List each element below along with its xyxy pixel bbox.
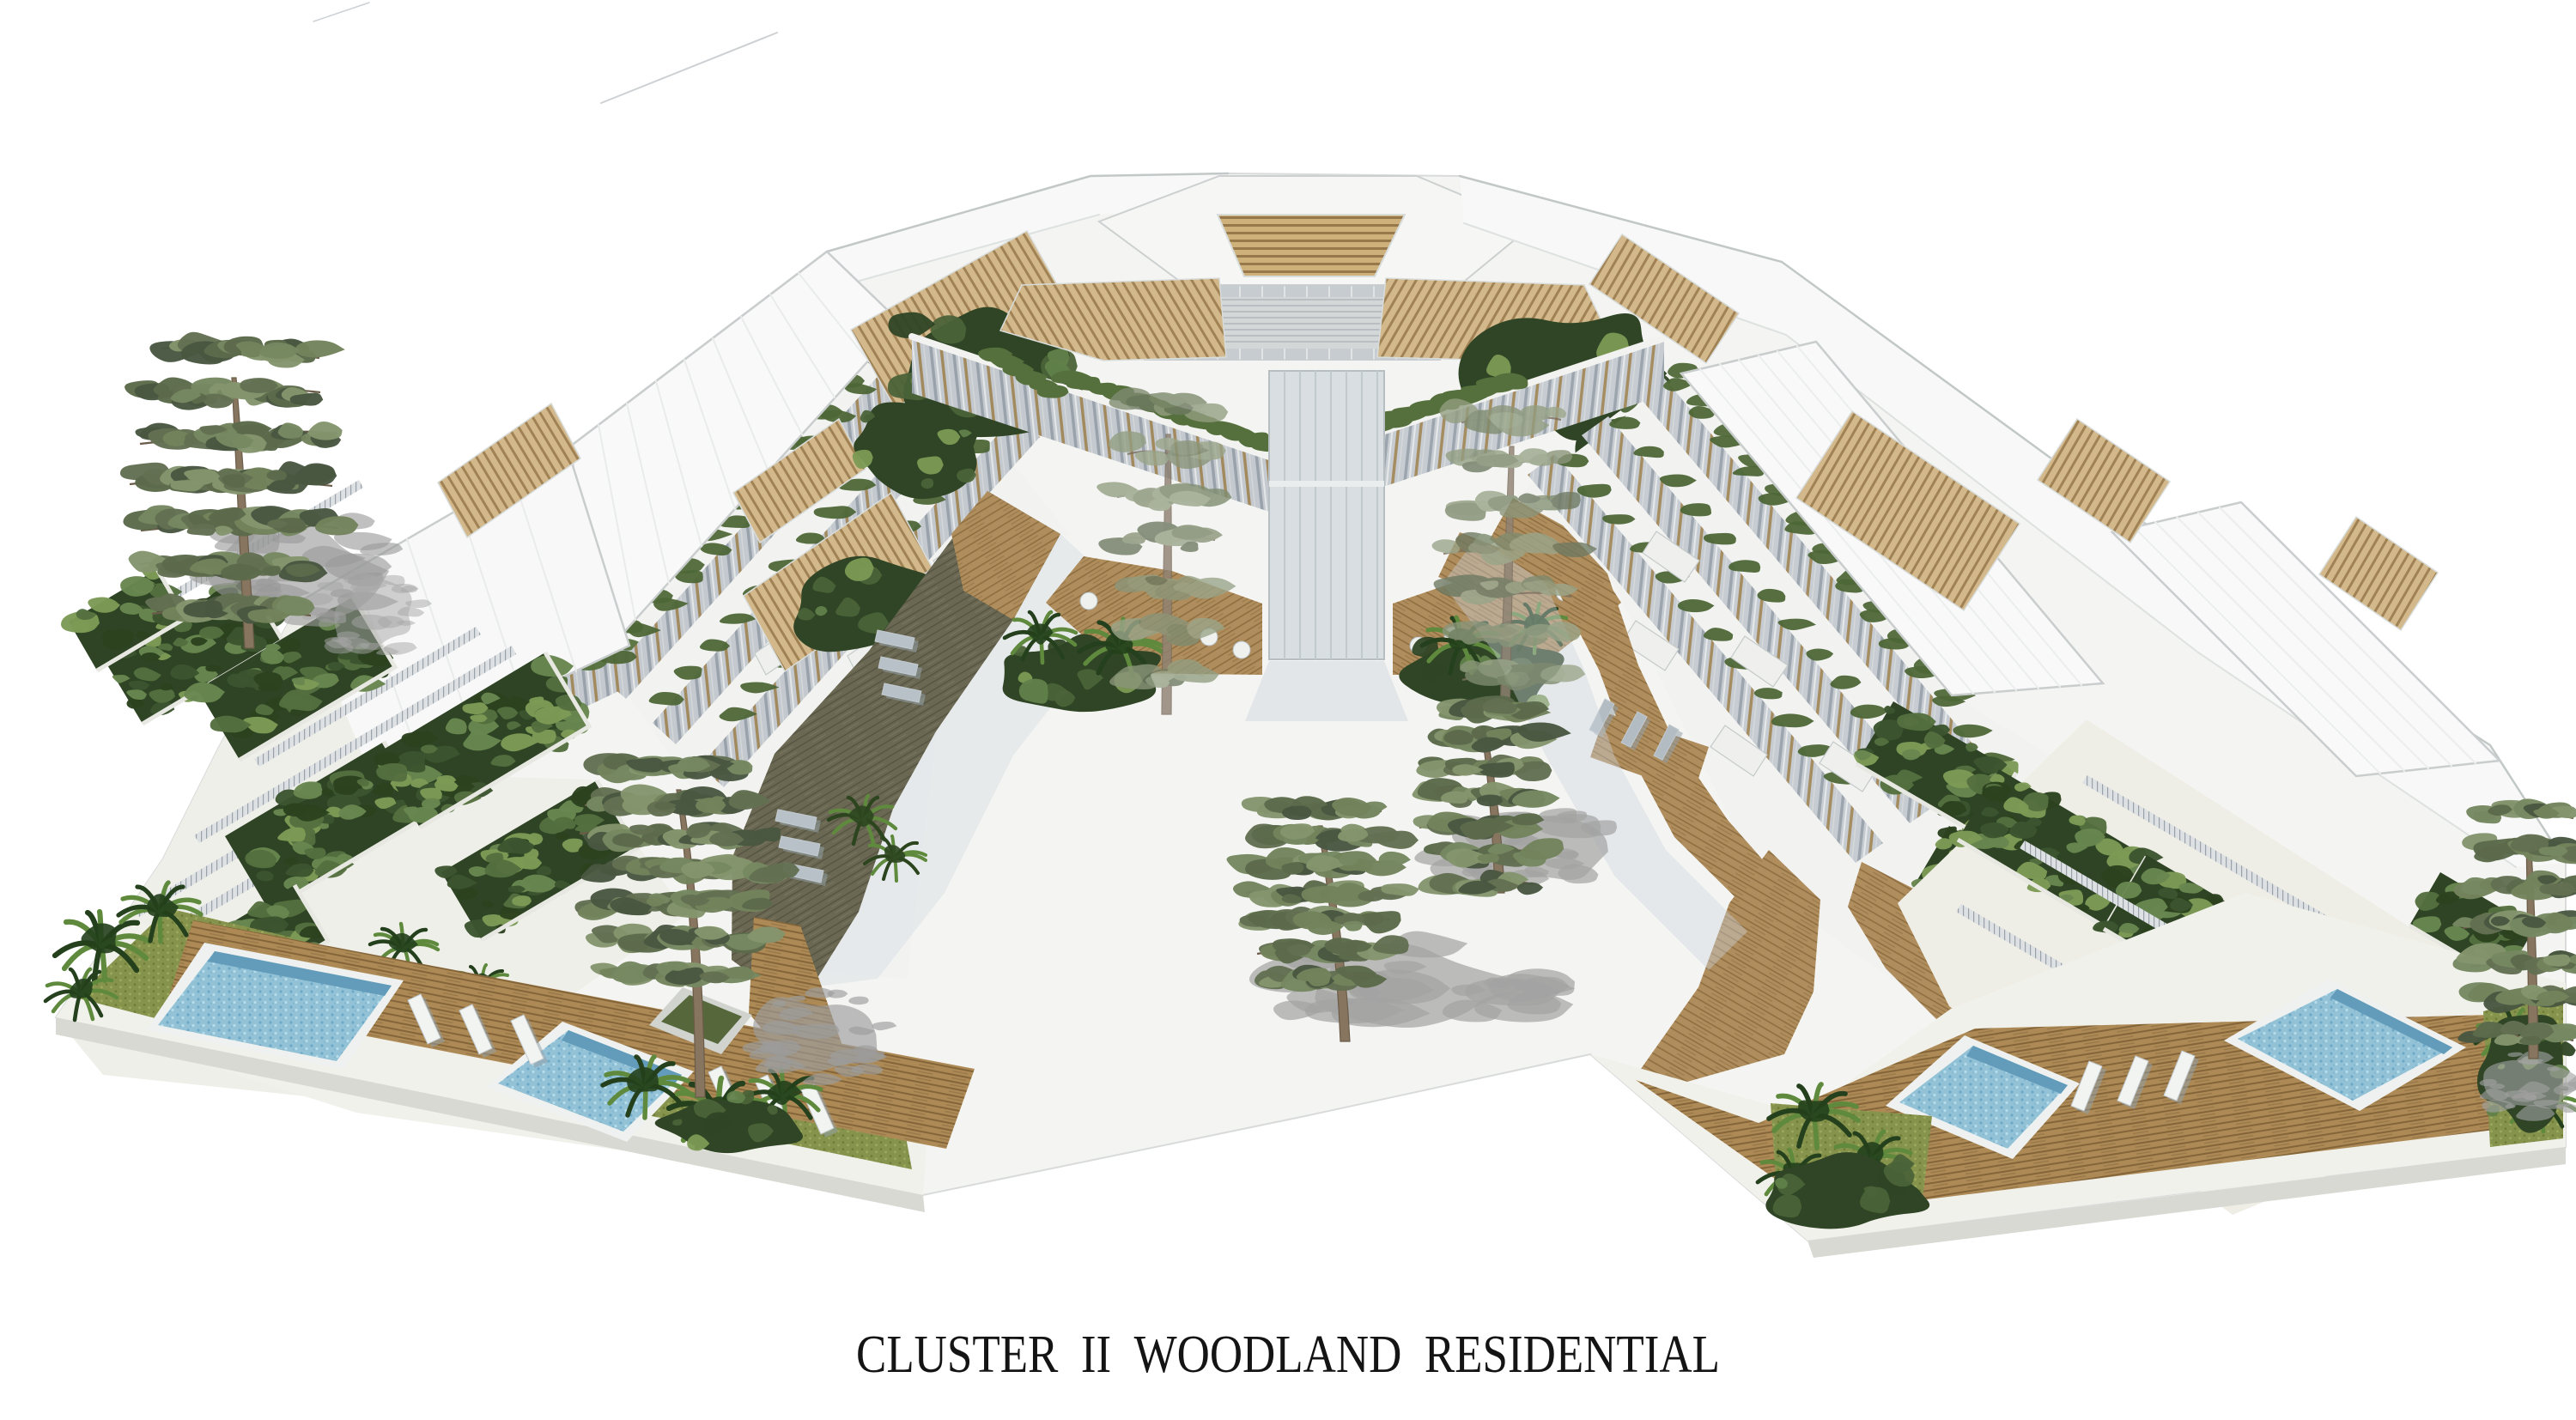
svg-text:CLUSTER II WOODLAND RESIDEN: CLUSTER II WOODLAND RESIDENTIAL bbox=[856, 1326, 1720, 1384]
